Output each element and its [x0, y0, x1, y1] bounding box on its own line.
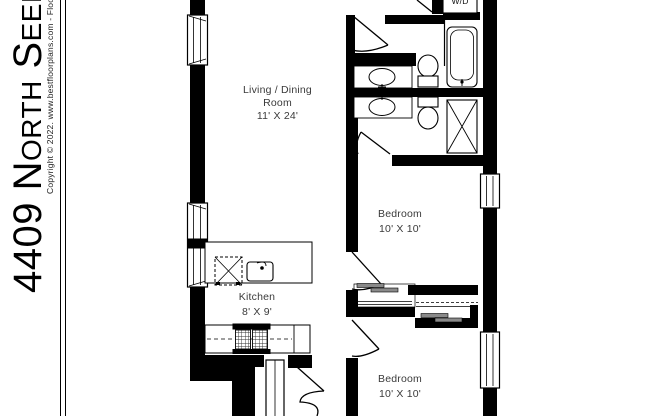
toilet [418, 55, 438, 87]
window [188, 15, 208, 65]
wall-segment [483, 0, 497, 176]
wall-segment [392, 155, 483, 166]
wall-segment [346, 155, 358, 166]
kitchen-label: Kitchen 8' X 9' [202, 290, 312, 320]
vanity-sink [354, 66, 412, 90]
window [481, 332, 500, 388]
bedroom2-label: Bedroom 10' X 10' [355, 372, 445, 402]
room-name: Kitchen [202, 290, 312, 305]
window [481, 174, 500, 208]
closet [354, 284, 415, 308]
room-name: Living / Dining [200, 84, 355, 97]
wall-segment [288, 355, 312, 368]
floorplan-drawing [0, 0, 652, 416]
room-dimensions: 11' X 24' [200, 110, 355, 123]
wall-segment [346, 15, 355, 55]
room-dimensions: 10' X 10' [355, 222, 445, 237]
room-name: Room [200, 97, 355, 110]
wall-segment [483, 207, 497, 334]
wall-segment [346, 88, 483, 97]
door-arc [352, 16, 388, 51]
wall-segment [432, 0, 443, 14]
toilet [418, 97, 438, 129]
bedroom1-label: Bedroom 10' X 10' [355, 207, 445, 237]
door-leaf-cutoff [417, 0, 432, 12]
room-dimensions: 8' X 9' [202, 305, 312, 320]
wall-segment [354, 307, 415, 317]
closet-sliding-doors [357, 284, 398, 293]
shower-stall [447, 100, 477, 153]
vanity-sink [354, 94, 412, 118]
wall-segment [190, 355, 232, 381]
washer-dryer-label: W/D [443, 0, 477, 6]
room-name: Bedroom [355, 372, 445, 387]
living-room-label: Living / Dining Room 11' X 24' [200, 84, 355, 123]
room-dimensions: 10' X 10' [355, 387, 445, 402]
room-name: Bedroom [355, 207, 445, 222]
door-arc [352, 320, 379, 356]
door-arc [357, 132, 390, 154]
kitchen-sink [247, 262, 273, 281]
entry-opening [266, 360, 284, 416]
wall-segment [190, 0, 205, 16]
entry-door [297, 367, 324, 416]
bathtub [447, 27, 477, 87]
wall-segment [346, 53, 416, 66]
wall-segment [232, 367, 255, 416]
wall-segment [408, 285, 478, 295]
wall-segment [470, 305, 478, 318]
wall-segment [385, 15, 444, 24]
wall-segment [483, 386, 497, 416]
floorplan-page: 4409 North Seeley Avenue Copyright © 202… [0, 0, 652, 416]
